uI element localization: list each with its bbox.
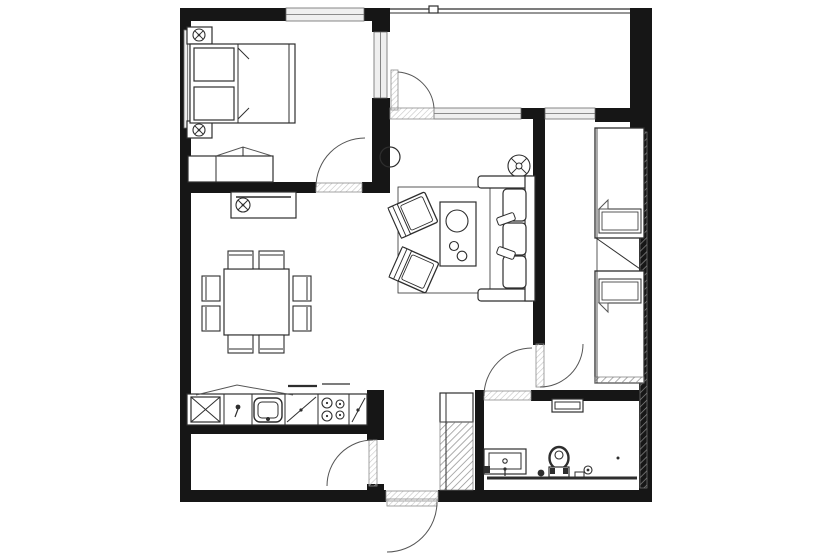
kitchen-fixture-dot [236, 405, 241, 410]
bath-wall-dot [617, 457, 620, 460]
window-living-balcony [434, 108, 521, 119]
wall-entry-top [367, 390, 384, 440]
door-leaf-kitchen [369, 440, 377, 486]
dining-chair-top-2 [259, 251, 284, 269]
floor-plan-svg [0, 0, 831, 555]
bed-pillow-top [194, 48, 234, 81]
threshold-bathroom-door [484, 391, 531, 400]
living-ceiling-lamp [508, 155, 530, 177]
wall-bottom-a [180, 490, 386, 502]
door-leaf-corridor [536, 344, 544, 387]
wall-bath-left [475, 390, 484, 498]
cooktop-knob-2 [326, 415, 328, 417]
wardrobe-b-bottom-panel [595, 377, 644, 383]
counter-handle-1 [299, 408, 302, 411]
wall-bedroom-right-top [372, 8, 390, 32]
bedroom-bench [188, 156, 273, 182]
bath-floor-item [538, 470, 545, 477]
plant-on-sideboard [236, 198, 250, 212]
balcony-railing-latch [429, 6, 438, 13]
cooktop-knob-1 [326, 402, 328, 404]
window-bedroom-top [286, 8, 364, 21]
dining-chair-bottom-2 [259, 335, 284, 353]
cooktop-knob-4 [339, 414, 341, 416]
door-leaf-balcony [391, 70, 398, 110]
dining-chair-top-1 [228, 251, 253, 269]
wall-balcony-pier [521, 108, 545, 119]
bath-floor-drain-center [587, 469, 590, 472]
window-bedroom-balcony [374, 32, 387, 98]
dining-chair-right-1 [293, 276, 311, 301]
wall-balcony-right-seg [595, 108, 640, 122]
dining-chair-right-2 [293, 306, 311, 331]
wall-bath-top-b [531, 390, 652, 401]
dining-chair-bottom-1 [228, 335, 253, 353]
door-leaf-main [387, 499, 437, 506]
wall-bedroom-right-mid [372, 98, 390, 192]
wall-bedroom-bottom-b [362, 182, 390, 193]
floor-plan [0, 0, 831, 555]
wall-bedroom-bottom-a [180, 182, 316, 193]
dining-table [224, 269, 289, 335]
kitchen-sink-tap [266, 417, 270, 421]
counter-handle-2 [356, 408, 359, 411]
threshold-bedroom-door [316, 183, 362, 192]
lamp-nightstand-top [193, 29, 205, 41]
window-corridor-balcony [545, 108, 595, 119]
entry-closet-top [440, 393, 473, 422]
dining-chair-left-1 [202, 276, 220, 301]
bath-vanity-item [484, 466, 490, 473]
dining-chair-left-2 [202, 306, 220, 331]
bed-pillow-bottom [194, 87, 234, 120]
entry-closet-hatched [440, 422, 473, 490]
cooktop-knob-3 [339, 403, 341, 405]
bath-radiator [552, 399, 583, 412]
lamp-nightstand-bottom [193, 124, 205, 136]
wall-bottom-b [438, 490, 652, 502]
toilet-tank-left [550, 468, 555, 474]
toilet-tank-right [563, 468, 568, 474]
coffee-table [440, 202, 476, 266]
sofa-cushion-3 [503, 256, 526, 288]
wall-top-left [180, 8, 286, 21]
wall-kitchen-partition [180, 425, 378, 434]
